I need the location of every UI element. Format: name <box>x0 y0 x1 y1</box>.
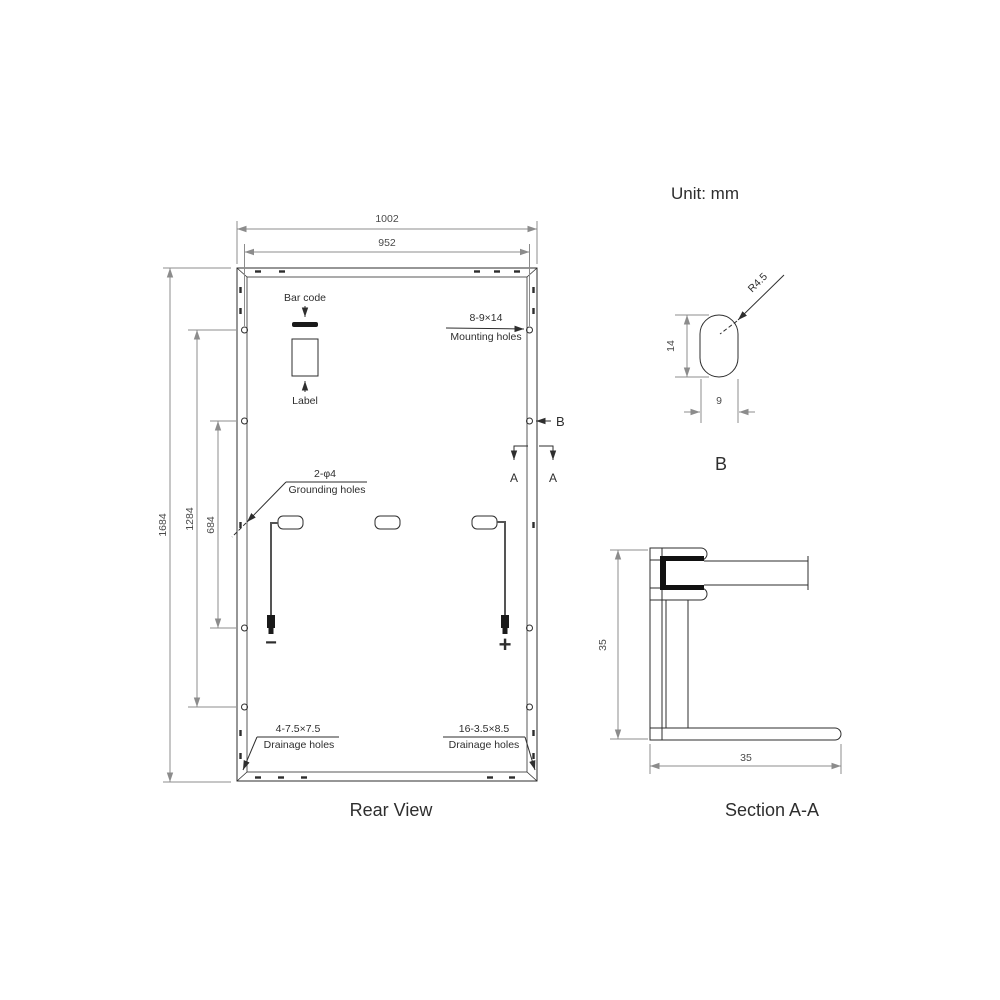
dim-slot-height: 14 <box>665 340 677 352</box>
polarity-negative: − <box>265 632 277 654</box>
mounting-holes-leader <box>446 328 524 329</box>
section-marker-a-right: A <box>549 471 557 485</box>
label-rectangle <box>292 339 318 376</box>
frame-bottom-flange <box>650 728 841 740</box>
detail-b-drawing: R4.5 14 9 B <box>665 271 784 474</box>
dim-frame-width: 35 <box>740 752 752 764</box>
section-aa-drawing: 35 35 Section A-A <box>597 548 841 820</box>
section-aa-title: Section A-A <box>725 800 819 820</box>
mounting-hole-slot <box>700 315 738 377</box>
radius-label: R4.5 <box>746 271 770 295</box>
frame-cross-section <box>650 548 841 740</box>
mounting-holes-name: Mounting holes <box>450 331 521 343</box>
frame-corner-bevels <box>237 268 537 781</box>
detail-b-title: B <box>715 454 727 474</box>
grounding-holes-spec: 2-φ4 <box>314 468 336 480</box>
detail-b-marker: B <box>556 414 565 429</box>
drainage-left-leader <box>243 737 257 770</box>
drainage-hole-ticks <box>241 272 534 778</box>
cable-positive <box>497 522 505 616</box>
junction-box-right <box>472 516 497 529</box>
grounding-holes-leader <box>247 482 286 522</box>
edge-sealant <box>660 556 704 590</box>
dim-mounting-width: 952 <box>378 237 396 249</box>
connector-positive <box>501 615 509 628</box>
mounting-holes-spec: 8-9×14 <box>470 312 503 324</box>
dim-overall-height: 1684 <box>157 513 169 537</box>
dim-frame-height: 35 <box>597 639 609 651</box>
junction-box-left <box>278 516 303 529</box>
drainage-right-spec: 16-3.5×8.5 <box>459 723 510 735</box>
rear-view-title: Rear View <box>350 800 434 820</box>
label-label: Label <box>292 395 318 407</box>
dim-overall-width: 1002 <box>375 213 399 225</box>
bar-code-label: Bar code <box>284 292 326 304</box>
grounding-holes-name: Grounding holes <box>288 484 365 496</box>
frame-inner-wall <box>666 600 688 728</box>
dim-slot-width: 9 <box>716 395 722 407</box>
drainage-right-name: Drainage holes <box>449 739 520 751</box>
rear-view-drawing: 1002 952 1684 1284 684 Bar code Label 8-… <box>157 213 565 820</box>
dim-mounting-span-inner: 684 <box>205 516 217 534</box>
dim-mounting-span-outer: 1284 <box>184 507 196 531</box>
panel-inner-frame <box>247 277 527 772</box>
cable-negative <box>271 523 278 616</box>
drawing-page: 1002 952 1684 1284 684 Bar code Label 8-… <box>0 0 1000 1000</box>
mounting-holes <box>242 327 533 710</box>
section-cut-left <box>514 446 528 460</box>
radius-leader-dash <box>720 321 737 334</box>
junction-box-center <box>375 516 400 529</box>
section-marker-a-left: A <box>510 471 518 485</box>
panel-outer-frame <box>237 268 537 781</box>
drainage-left-name: Drainage holes <box>264 739 335 751</box>
connector-negative <box>267 615 275 628</box>
grounding-holes-leader-dash <box>232 523 246 537</box>
unit-label: Unit: mm <box>671 184 739 203</box>
bar-code-graphic <box>292 322 318 327</box>
solar-panel-technical-drawing: 1002 952 1684 1284 684 Bar code Label 8-… <box>0 0 1000 1000</box>
polarity-positive: + <box>499 632 512 657</box>
section-cut-right <box>539 446 553 460</box>
drainage-left-spec: 4-7.5×7.5 <box>276 723 321 735</box>
